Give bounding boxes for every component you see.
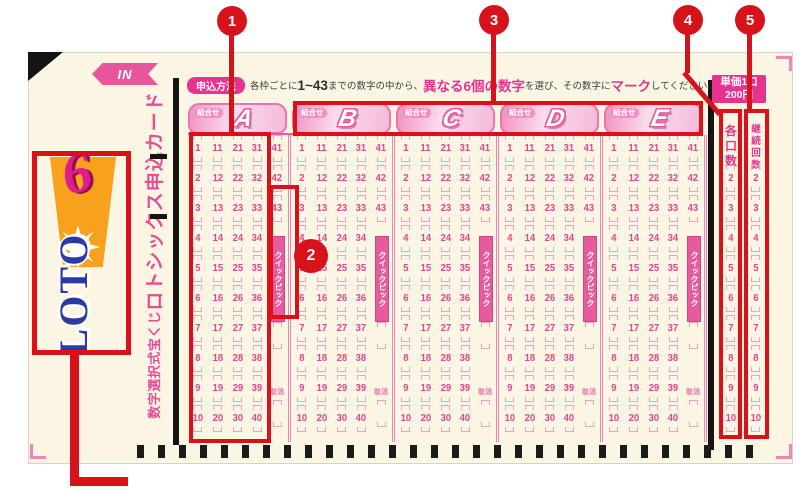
mark-bracket-bottom <box>461 307 470 312</box>
mark-value: 39 <box>564 383 575 394</box>
mark-value: 5 <box>195 263 200 274</box>
mark-bracket-top <box>669 345 678 350</box>
mark-bracket-bottom <box>481 187 490 192</box>
mark-value: 9 <box>195 383 200 394</box>
number-cell: 21 <box>436 135 455 162</box>
number-cell: 41 <box>684 135 703 162</box>
number-cell: 12 <box>520 165 539 192</box>
number-cell: 37 <box>560 315 579 342</box>
callout-stem-3 <box>491 28 496 103</box>
number-cell: 28 <box>436 345 455 372</box>
number-cell: 18 <box>312 345 331 372</box>
mark-value: 34 <box>564 233 575 244</box>
mark-bracket-top <box>213 195 222 200</box>
mark-bracket-top <box>441 405 450 410</box>
mark-value: 4 <box>753 233 758 244</box>
number-cell: 23 <box>644 195 663 222</box>
mark-value: 2 <box>507 173 512 184</box>
number-cell: 30 <box>228 405 247 432</box>
number-cell: 13 <box>624 195 643 222</box>
mark-value: 34 <box>668 233 679 244</box>
mark-value: 6 <box>507 293 512 304</box>
number-cell: 6 <box>292 285 311 312</box>
mark-bracket-top <box>461 285 470 290</box>
number-cell: 25 <box>540 255 559 282</box>
mark-value: 19 <box>420 383 431 394</box>
timing-mark <box>284 445 291 458</box>
mark-bracket-bottom <box>505 247 514 252</box>
mark-bracket-bottom <box>401 337 410 342</box>
number-cell: 29 <box>644 375 663 402</box>
mark-value: 15 <box>212 263 223 274</box>
mark-bracket-top <box>317 165 326 170</box>
mark-value: 40 <box>564 413 575 424</box>
mark-bracket-top <box>421 375 430 380</box>
mark-bracket-bottom <box>253 247 262 252</box>
mark-value: 18 <box>212 353 223 364</box>
number-cell: 15 <box>624 255 643 282</box>
mark-bracket-bottom <box>441 307 450 312</box>
number-cell: 37 <box>664 315 683 342</box>
number-cell: 21 <box>332 135 351 162</box>
number-cell: 41 <box>268 135 287 162</box>
quick-pick-banner: クイックピック <box>271 236 285 322</box>
mark-bracket-top <box>669 165 678 170</box>
mark-value: 32 <box>252 173 263 184</box>
mark-value: 11 <box>629 143 639 154</box>
mark-bracket-top <box>461 135 470 140</box>
number-cell: 22 <box>228 165 247 192</box>
mark-value: 19 <box>316 383 327 394</box>
mark-value: 11 <box>213 143 223 154</box>
mark-bracket-bottom <box>193 427 202 432</box>
mark-bracket-top <box>629 345 638 350</box>
mark-bracket-top <box>297 315 306 320</box>
mark-bracket-bottom <box>401 307 410 312</box>
number-cell: 17 <box>208 315 227 342</box>
mark-value: 5 <box>507 263 512 274</box>
mark-bracket-top <box>609 285 618 290</box>
mark-bracket-bottom <box>565 337 574 342</box>
mark-value: 21 <box>440 143 451 154</box>
number-cell: 17 <box>312 315 331 342</box>
mark-bracket-bottom <box>609 367 618 372</box>
mark-bracket-top <box>689 400 698 405</box>
number-cell: 13 <box>416 195 435 222</box>
number-cell: 11 <box>312 135 331 162</box>
number-cell: 29 <box>228 375 247 402</box>
number-cell: 40 <box>560 405 579 432</box>
mark-value: 42 <box>584 173 595 184</box>
mark-bracket-top <box>629 285 638 290</box>
number-cell: 19 <box>416 375 435 402</box>
mark-bracket-top <box>669 285 678 290</box>
mark-bracket-bottom <box>233 217 242 222</box>
mark-bracket-top <box>461 255 470 260</box>
mark-bracket-bottom <box>545 397 554 402</box>
mark-value: 36 <box>460 293 471 304</box>
mark-bracket-bottom <box>273 344 282 349</box>
number-cell: 21 <box>540 135 559 162</box>
number-cell: 24 <box>332 225 351 252</box>
number-cell: 31 <box>352 135 371 162</box>
mark-bracket-bottom <box>726 397 735 402</box>
mark-value: 13 <box>420 203 431 214</box>
mark-value: 43 <box>272 203 283 214</box>
mark-bracket-bottom <box>441 157 450 162</box>
number-cell: 27 <box>436 315 455 342</box>
mark-value: 17 <box>524 323 535 334</box>
timing-mark <box>179 445 186 458</box>
mark-bracket-top <box>233 285 242 290</box>
mark-bracket-bottom <box>233 367 242 372</box>
mark-value: 43 <box>584 203 595 214</box>
number-cell: 29 <box>540 375 559 402</box>
mark-bracket-top <box>609 255 618 260</box>
mark-bracket-top <box>726 375 735 380</box>
mark-bracket-top <box>193 315 202 320</box>
mark-value: 14 <box>420 233 431 244</box>
mark-bracket-bottom <box>609 277 618 282</box>
logo-leader-horizontal <box>70 477 128 486</box>
option-mark-cell: 3 <box>746 195 765 222</box>
mark-bracket-bottom <box>505 217 514 222</box>
number-cell: 12 <box>624 165 643 192</box>
mark-bracket-bottom <box>441 337 450 342</box>
combo-letter: B <box>303 105 392 133</box>
mark-bracket-top <box>401 315 410 320</box>
mark-bracket-top <box>337 315 346 320</box>
mark-bracket-top <box>505 405 514 410</box>
number-cell: 11 <box>624 135 643 162</box>
combo-letter: A <box>199 105 288 133</box>
mark-value: 5 <box>753 263 758 274</box>
mark-bracket-bottom <box>297 337 306 342</box>
timing-mark <box>641 445 648 458</box>
mark-bracket-bottom <box>669 247 678 252</box>
mark-bracket-top <box>441 315 450 320</box>
mark-bracket-top <box>461 225 470 230</box>
mark-bracket-top <box>421 405 430 410</box>
mark-bracket-bottom <box>525 397 534 402</box>
mark-value: 27 <box>440 323 451 334</box>
number-cell: 13 <box>520 195 539 222</box>
timing-mark <box>599 445 606 458</box>
mark-bracket-top <box>609 375 618 380</box>
mark-value: 41 <box>688 143 699 154</box>
mark-bracket-bottom <box>401 157 410 162</box>
mark-value: 39 <box>460 383 471 394</box>
mark-bracket-bottom <box>565 157 574 162</box>
mark-value: 29 <box>232 383 243 394</box>
cancel-mark-cell <box>476 400 495 427</box>
number-cell: 17 <box>416 315 435 342</box>
mark-value: 25 <box>544 263 555 274</box>
mark-bracket-bottom <box>357 337 366 342</box>
mark-bracket-bottom <box>565 247 574 252</box>
mark-bracket-top <box>233 225 242 230</box>
mark-bracket-bottom <box>273 187 282 192</box>
number-cell: 10 <box>396 405 415 432</box>
cancel-mark-cell <box>580 400 599 427</box>
mark-value: 10 <box>750 413 761 424</box>
mark-value: 26 <box>440 293 451 304</box>
mark-bracket-top <box>273 165 282 170</box>
mark-bracket-bottom <box>629 157 638 162</box>
mark-bracket-top <box>565 345 574 350</box>
mark-bracket-top <box>297 165 306 170</box>
mark-bracket-top <box>193 165 202 170</box>
mark-bracket-top <box>609 135 618 140</box>
mark-bracket-bottom <box>461 217 470 222</box>
mark-bracket-bottom <box>441 247 450 252</box>
option-column-title: 各 口 数 <box>720 124 742 169</box>
timing-mark <box>683 445 690 458</box>
mark-bracket-bottom <box>751 187 760 192</box>
number-cell: 5 <box>396 255 415 282</box>
mark-bracket-bottom <box>751 427 760 432</box>
mark-bracket-bottom <box>565 217 574 222</box>
block-separator <box>496 135 499 442</box>
timing-mark <box>557 445 564 458</box>
mark-bracket-top <box>317 315 326 320</box>
timing-mark <box>242 445 249 458</box>
mark-bracket-bottom <box>461 247 470 252</box>
mark-bracket-top <box>726 285 735 290</box>
mark-value: 14 <box>628 233 639 244</box>
mark-bracket-bottom <box>421 337 430 342</box>
mark-value: 28 <box>544 353 555 364</box>
callout-badge-3: 3 <box>479 5 509 35</box>
number-cell: 14 <box>416 225 435 252</box>
mark-bracket-bottom <box>689 187 698 192</box>
mark-bracket-top <box>401 285 410 290</box>
mark-bracket-top <box>297 225 306 230</box>
mark-value: 13 <box>316 203 327 214</box>
mark-bracket-top <box>421 135 430 140</box>
mark-bracket-top <box>649 345 658 350</box>
mark-bracket-top <box>401 345 410 350</box>
mark-bracket-top <box>213 285 222 290</box>
mark-bracket-top <box>525 255 534 260</box>
mark-bracket-bottom <box>193 307 202 312</box>
mark-bracket-bottom <box>545 157 554 162</box>
number-cell: 9 <box>500 375 519 402</box>
quick-pick-mark-cell <box>580 322 599 349</box>
mark-bracket-top <box>337 345 346 350</box>
number-cell: 40 <box>664 405 683 432</box>
mark-value: 35 <box>668 263 679 274</box>
mark-bracket-bottom <box>609 427 618 432</box>
number-cell: 33 <box>664 195 683 222</box>
number-cell: 35 <box>248 255 267 282</box>
instruction-segment: してください。 <box>651 78 717 92</box>
mark-bracket-bottom <box>481 217 490 222</box>
mark-bracket-top <box>377 195 386 200</box>
mark-value: 6 <box>299 293 304 304</box>
mark-value: 24 <box>232 233 243 244</box>
mark-bracket-top <box>297 375 306 380</box>
mark-bracket-bottom <box>649 187 658 192</box>
mark-value: 15 <box>420 263 431 274</box>
mark-value: 9 <box>728 383 733 394</box>
mark-bracket-top <box>669 195 678 200</box>
option-mark-cell: 2 <box>721 165 740 192</box>
mark-bracket-top <box>669 315 678 320</box>
mark-bracket-top <box>233 345 242 350</box>
mark-bracket-bottom <box>317 427 326 432</box>
mark-value: 26 <box>232 293 243 304</box>
mark-bracket-top <box>609 345 618 350</box>
mark-bracket-top <box>357 165 366 170</box>
mark-value: 2 <box>195 173 200 184</box>
timing-mark <box>431 445 438 458</box>
mark-value: 2 <box>728 173 733 184</box>
mark-bracket-bottom <box>461 397 470 402</box>
mark-bracket-top <box>421 285 430 290</box>
option-mark-cell: 7 <box>746 315 765 342</box>
alignment-dash <box>150 214 167 219</box>
mark-bracket-bottom <box>669 367 678 372</box>
mark-bracket-bottom <box>297 307 306 312</box>
number-cell: 39 <box>664 375 683 402</box>
mark-value: 31 <box>252 143 263 154</box>
mark-bracket-bottom <box>525 337 534 342</box>
number-cell: 28 <box>228 345 247 372</box>
mark-bracket-top <box>649 195 658 200</box>
mark-bracket-top <box>273 195 282 200</box>
mark-bracket-bottom <box>337 247 346 252</box>
number-cell: 39 <box>352 375 371 402</box>
mark-value: 35 <box>460 263 471 274</box>
mark-value: 8 <box>611 353 616 364</box>
number-cell: 32 <box>664 165 683 192</box>
number-cell: 26 <box>540 285 559 312</box>
mark-bracket-bottom <box>441 427 450 432</box>
mark-value: 8 <box>195 353 200 364</box>
mark-bracket-bottom <box>253 397 262 402</box>
combo-tab-A: 組合せA <box>188 103 287 134</box>
mark-bracket-bottom <box>505 427 514 432</box>
mark-bracket-bottom <box>609 397 618 402</box>
mark-bracket-bottom <box>317 187 326 192</box>
mark-bracket-top <box>193 375 202 380</box>
mark-bracket-top <box>337 405 346 410</box>
number-cell: 15 <box>208 255 227 282</box>
mark-value: 41 <box>376 143 387 154</box>
mark-value: 40 <box>668 413 679 424</box>
mark-bracket-top <box>253 375 262 380</box>
option-mark-cell: 8 <box>746 345 765 372</box>
mark-bracket-top <box>233 255 242 260</box>
cancel-mark-cell <box>684 400 703 427</box>
instruction-emphasis: 異なる6個の数字 <box>423 75 525 95</box>
mark-bracket-bottom <box>751 397 760 402</box>
mark-bracket-top <box>609 165 618 170</box>
mark-bracket-top <box>357 225 366 230</box>
number-cell: 21 <box>228 135 247 162</box>
timing-mark <box>158 445 165 458</box>
mark-bracket-top <box>377 322 386 327</box>
mark-bracket-top <box>357 285 366 290</box>
number-cell: 33 <box>352 195 371 222</box>
mark-value: 1 <box>507 143 512 154</box>
mark-bracket-top <box>565 195 574 200</box>
mark-value: 35 <box>252 263 263 274</box>
mark-bracket-bottom <box>609 307 618 312</box>
mark-bracket-bottom <box>233 157 242 162</box>
number-cell: 22 <box>644 165 663 192</box>
mark-bracket-top <box>585 135 594 140</box>
mark-value: 25 <box>336 263 347 274</box>
mark-value: 29 <box>440 383 451 394</box>
mark-value: 7 <box>195 323 200 334</box>
mark-bracket-top <box>726 225 735 230</box>
mark-bracket-bottom <box>401 277 410 282</box>
option-mark-cell: 7 <box>721 315 740 342</box>
mark-bracket-bottom <box>461 427 470 432</box>
mark-bracket-top <box>525 165 534 170</box>
mark-value: 16 <box>212 293 223 304</box>
mark-value: 2 <box>753 173 758 184</box>
mark-value: 7 <box>753 323 758 334</box>
mark-bracket-top <box>649 165 658 170</box>
number-cell: 7 <box>292 315 311 342</box>
timing-mark <box>326 445 333 458</box>
mark-value: 37 <box>564 323 575 334</box>
mark-bracket-top <box>233 315 242 320</box>
timing-mark <box>137 445 144 458</box>
mark-value: 30 <box>440 413 451 424</box>
number-cell: 41 <box>476 135 495 162</box>
mark-bracket-top <box>669 255 678 260</box>
mark-bracket-bottom <box>297 427 306 432</box>
card-side-title-small: 数字選択式宝くじ <box>144 311 163 419</box>
mark-value: 11 <box>525 143 535 154</box>
mark-bracket-top <box>669 405 678 410</box>
mark-value: 22 <box>232 173 243 184</box>
number-cell: 19 <box>624 375 643 402</box>
mark-bracket-top <box>421 225 430 230</box>
number-cell: 1 <box>292 135 311 162</box>
mark-bracket-bottom <box>401 427 410 432</box>
number-cell: 8 <box>604 345 623 372</box>
mark-value: 23 <box>648 203 659 214</box>
number-cell: 37 <box>352 315 371 342</box>
mark-bracket-bottom <box>193 157 202 162</box>
mark-bracket-top <box>525 345 534 350</box>
mark-bracket-top <box>253 405 262 410</box>
number-cell: 20 <box>312 405 331 432</box>
mark-value: 15 <box>524 263 535 274</box>
mark-bracket-top <box>525 405 534 410</box>
number-cell: 43 <box>268 195 287 222</box>
mark-bracket-top <box>193 135 202 140</box>
mark-bracket-top <box>337 135 346 140</box>
card-side-title: 数字選択式宝くじ ロトシックス申込カード <box>138 70 168 440</box>
mark-bracket-bottom <box>565 277 574 282</box>
number-cell: 22 <box>540 165 559 192</box>
number-cell: 38 <box>560 345 579 372</box>
mark-bracket-top <box>751 255 760 260</box>
mark-value: 18 <box>628 353 639 364</box>
mark-bracket-bottom <box>193 187 202 192</box>
mark-bracket-top <box>649 255 658 260</box>
mark-bracket-top <box>233 375 242 380</box>
mark-value: 40 <box>460 413 471 424</box>
number-cell: 39 <box>248 375 267 402</box>
mark-value: 6 <box>728 293 733 304</box>
